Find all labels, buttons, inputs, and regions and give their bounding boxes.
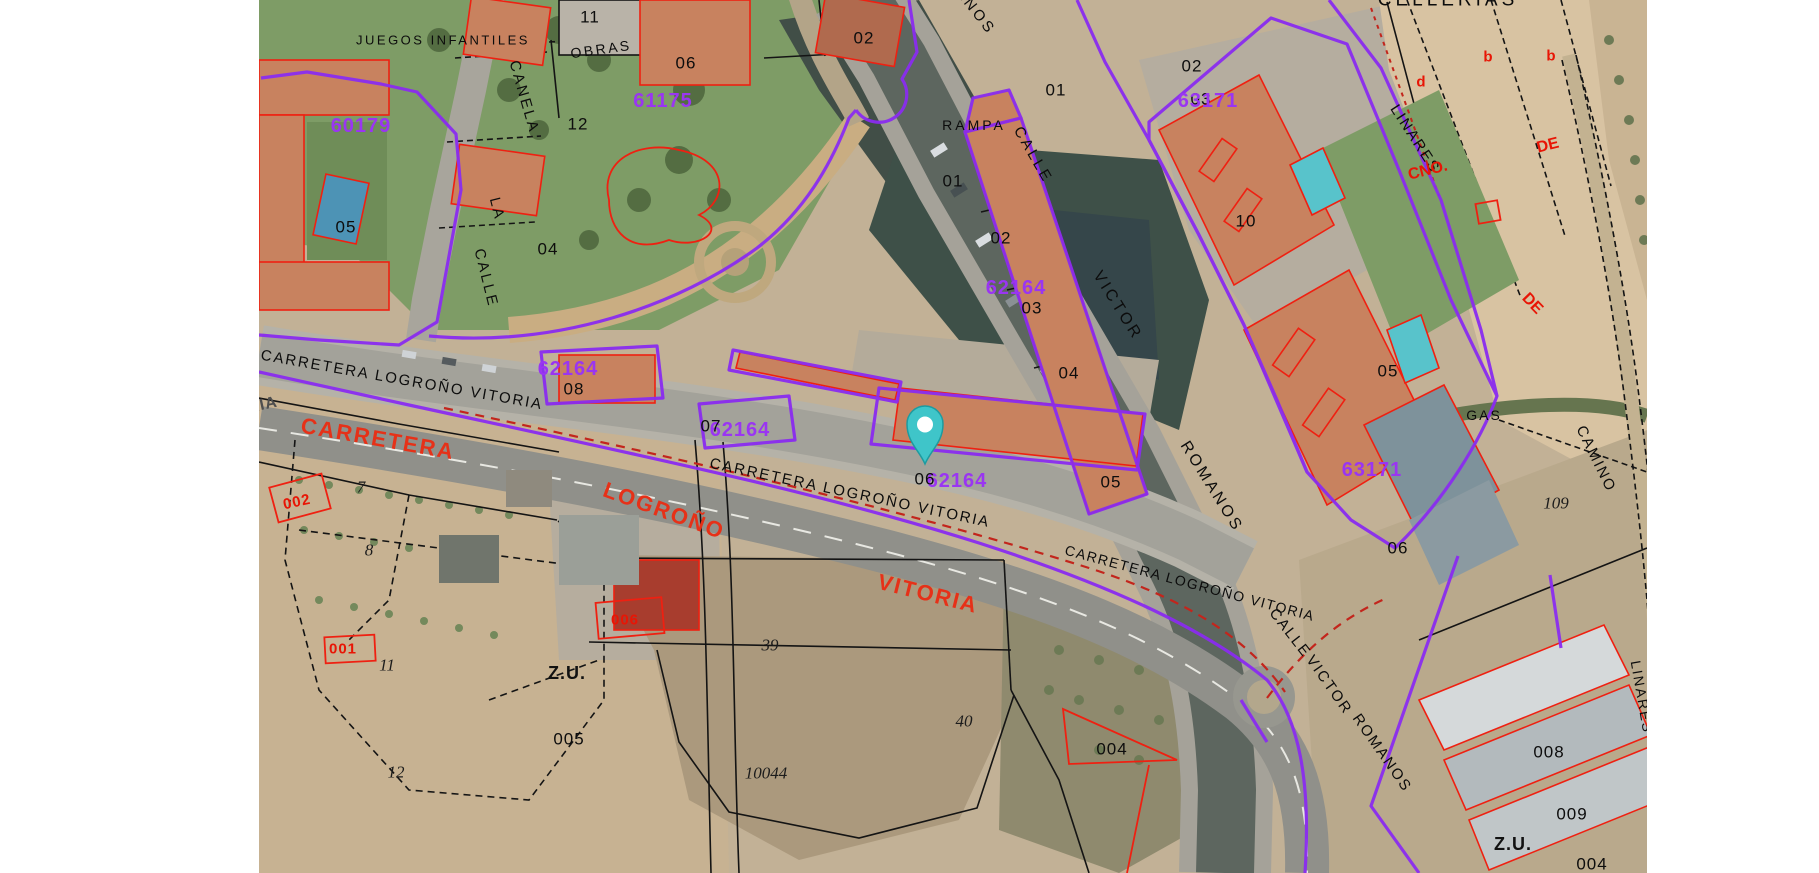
map-label: ROMANOS — [926, 0, 998, 37]
map-label: 006 — [611, 613, 639, 628]
map-label: 11 — [580, 9, 600, 26]
map-label: b — [1546, 49, 1555, 64]
map-label: VITORIA — [875, 571, 980, 617]
map-label: 05 — [336, 219, 357, 236]
map-label: 62164 — [927, 471, 988, 491]
map-label: 10 — [1236, 213, 1257, 230]
map-label: 39 — [762, 637, 779, 654]
map-label: 005 — [553, 731, 584, 748]
map-label: LOGROÑO — [600, 479, 727, 543]
map-label: 63171 — [1342, 460, 1403, 480]
map-canvas[interactable]: JUEGOS INFANTILESOBRAS11CANELALACALLE066… — [259, 0, 1647, 873]
map-label: 001 — [329, 642, 357, 657]
map-label: DE — [1535, 136, 1560, 157]
map-label: 009 — [1556, 806, 1587, 823]
map-label: GAS — [1466, 408, 1502, 422]
map-label: 05 — [1378, 363, 1399, 380]
map-labels-layer: JUEGOS INFANTILESOBRAS11CANELALACALLE066… — [259, 0, 1647, 873]
map-label: VICTOR — [1090, 269, 1145, 344]
map-label: 8 — [365, 542, 374, 559]
map-label: LINARES — [1629, 659, 1647, 734]
map-label: 12 — [568, 116, 589, 133]
map-label: CALLE — [1011, 124, 1055, 186]
map-label: JUEGOS INFANTILES — [356, 34, 530, 47]
map-label: d — [1416, 75, 1425, 90]
map-label: CANELA — [506, 59, 541, 135]
map-label: 04 — [1059, 365, 1080, 382]
map-label: 004 — [1576, 856, 1607, 873]
map-label: 60179 — [331, 116, 392, 136]
map-label: 10044 — [745, 765, 788, 782]
map-label: 05 — [1101, 474, 1122, 491]
map-label: 008 — [1533, 744, 1564, 761]
map-label: CARRETERA LOGROÑO VITORIA — [708, 456, 991, 530]
location-pin-icon[interactable] — [905, 404, 945, 471]
map-label: 06 — [1388, 540, 1409, 557]
map-label: LA — [487, 196, 507, 222]
map-label: 61175 — [633, 91, 693, 111]
map-label: 63171 — [1178, 91, 1239, 111]
map-label: CALLE — [471, 247, 500, 309]
map-label: 06 — [676, 55, 697, 72]
map-label: 7 — [357, 479, 366, 496]
map-label: 11 — [379, 657, 395, 674]
map-label: 01 — [943, 173, 964, 190]
map-label: OBRAS — [570, 38, 633, 60]
map-label: Z.U. — [1494, 835, 1532, 853]
map-label: 02 — [991, 230, 1012, 247]
map-label: CAMINO — [1573, 423, 1618, 494]
map-label: RAMPA — [942, 118, 1006, 132]
map-label: VICTOR — [1303, 653, 1355, 718]
map-label: 02 — [1182, 58, 1203, 75]
map-label: 01 — [1046, 82, 1067, 99]
map-label: b — [1483, 50, 1492, 65]
map-label: 109 — [1543, 495, 1569, 512]
map-label: CNO. — [1407, 158, 1450, 183]
map-label: 03 — [1022, 300, 1043, 317]
map-label: ROMANOS — [1350, 711, 1415, 795]
map-label: 62164 — [986, 278, 1047, 298]
map-label: Z.U. — [548, 664, 586, 682]
map-label: 002 — [282, 492, 313, 513]
map-label: 04 — [538, 241, 559, 258]
map-label: DE — [1519, 290, 1546, 317]
map-label: 12 — [388, 764, 405, 781]
map-label: 62164 — [538, 359, 599, 379]
map-label: 06 — [915, 471, 936, 488]
map-label: 07 — [701, 418, 722, 435]
map-label: 08 — [564, 381, 585, 398]
map-label: CARRETERA — [299, 415, 457, 464]
map-label: CELLERIAS — [1378, 0, 1519, 10]
map-label: CARRETERA LOGROÑO VITORIA — [260, 348, 545, 413]
map-label: 02 — [854, 30, 875, 47]
map-label: ORIA — [259, 395, 279, 420]
map-label: 40 — [956, 713, 973, 730]
map-label: ROMANOS — [1177, 439, 1246, 535]
cadastral-map-page: JUEGOS INFANTILESOBRAS11CANELALACALLE066… — [0, 0, 1819, 873]
map-label: 004 — [1096, 741, 1127, 758]
